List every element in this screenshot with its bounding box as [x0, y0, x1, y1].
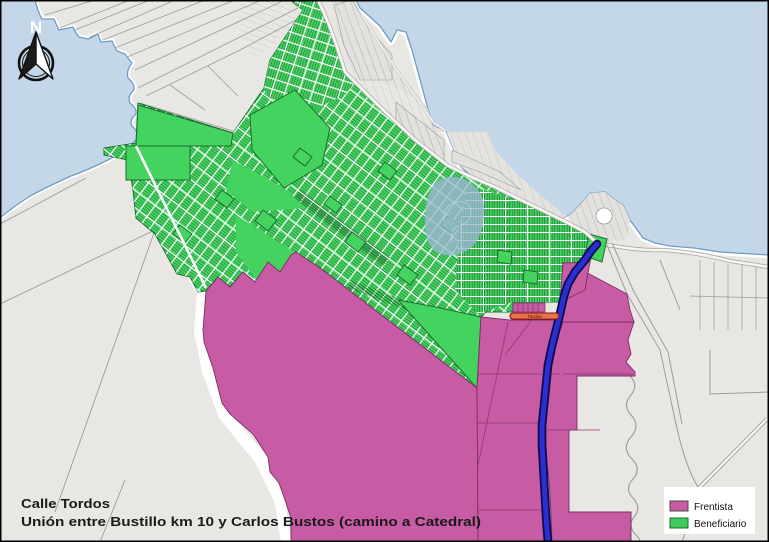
svg-text:Calle Tordos: Calle Tordos [21, 496, 110, 511]
svg-text:Tordos: Tordos [527, 314, 542, 320]
svg-text:Beneficiario: Beneficiario [694, 519, 747, 530]
svg-text:Unión entre Bustillo km 10 y C: Unión entre Bustillo km 10 y Carlos Bust… [21, 514, 481, 529]
svg-text:Frentista: Frentista [694, 502, 733, 513]
svg-text:N: N [30, 18, 42, 37]
